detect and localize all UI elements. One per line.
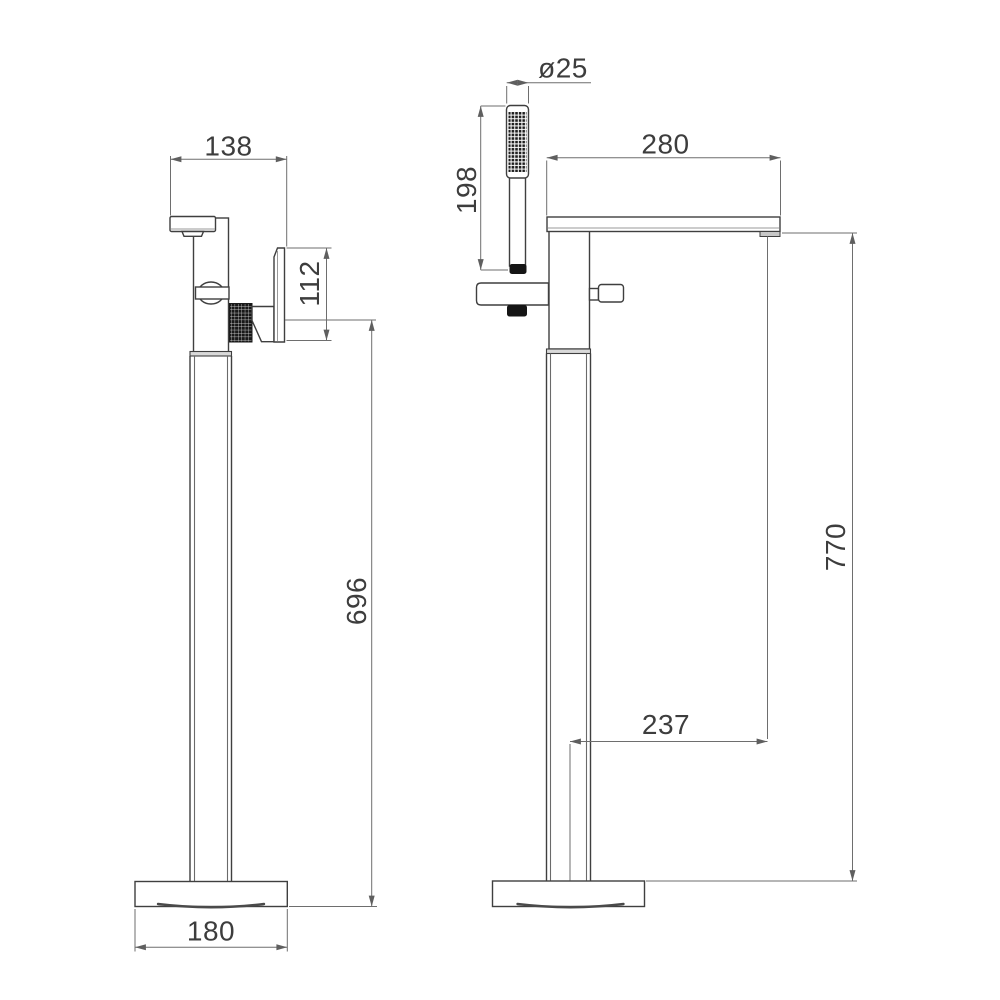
- dim-label-198: 198: [451, 166, 482, 214]
- dim-label-237: 237: [642, 709, 690, 740]
- side-base: [493, 881, 645, 907]
- handset-spray-texture: [509, 112, 527, 172]
- dim-spout-reach-from-axis: 237: [570, 237, 768, 881]
- front-column-joint: [190, 352, 232, 357]
- side-spout: [547, 217, 780, 232]
- technical-drawing: 138 112 696 180 ø25: [0, 0, 1000, 1000]
- front-diverter-knob: [230, 304, 253, 343]
- side-handle-stem: [590, 289, 599, 301]
- front-spout-aerator: [182, 232, 204, 237]
- dim-spout-projection: 280: [547, 129, 781, 216]
- dim-label-138: 138: [204, 131, 252, 162]
- dim-label-180: 180: [187, 916, 235, 947]
- dim-label-d25: ø25: [538, 53, 588, 84]
- front-handle-band: [196, 287, 230, 299]
- front-column-lower: [190, 356, 232, 882]
- drawing-canvas: 138 112 696 180 ø25: [0, 0, 1000, 1000]
- handset-body: [510, 170, 526, 266]
- side-spout-nozzle: [760, 232, 780, 237]
- dim-label-696: 696: [341, 577, 372, 625]
- side-handset-holder: [477, 283, 549, 305]
- front-view: [135, 217, 287, 908]
- dim-overall-height: 770: [646, 233, 857, 881]
- dim-base-width: 180: [135, 909, 287, 952]
- side-view: [477, 106, 781, 908]
- dim-label-112: 112: [294, 260, 325, 306]
- dim-handset-diameter: ø25: [507, 53, 591, 104]
- front-handset-edge: [274, 248, 285, 342]
- front-base: [135, 882, 287, 907]
- side-column-lower: [547, 354, 591, 882]
- dim-label-770: 770: [820, 523, 851, 571]
- side-column-upper: [549, 229, 590, 349]
- side-handle-knob: [599, 285, 624, 303]
- handset-tip: [510, 264, 527, 274]
- side-column-joint: [547, 349, 591, 354]
- dim-bracket-height: 112: [287, 248, 332, 341]
- side-handset: [507, 106, 529, 275]
- dimensions: 138 112 696 180 ø25: [135, 53, 857, 952]
- side-holder-knob: [507, 305, 527, 317]
- dim-outlet-height: 696: [285, 320, 377, 907]
- dim-label-280: 280: [641, 129, 689, 160]
- dim-handset-length: 198: [451, 106, 508, 270]
- front-handset-holder: [252, 307, 274, 342]
